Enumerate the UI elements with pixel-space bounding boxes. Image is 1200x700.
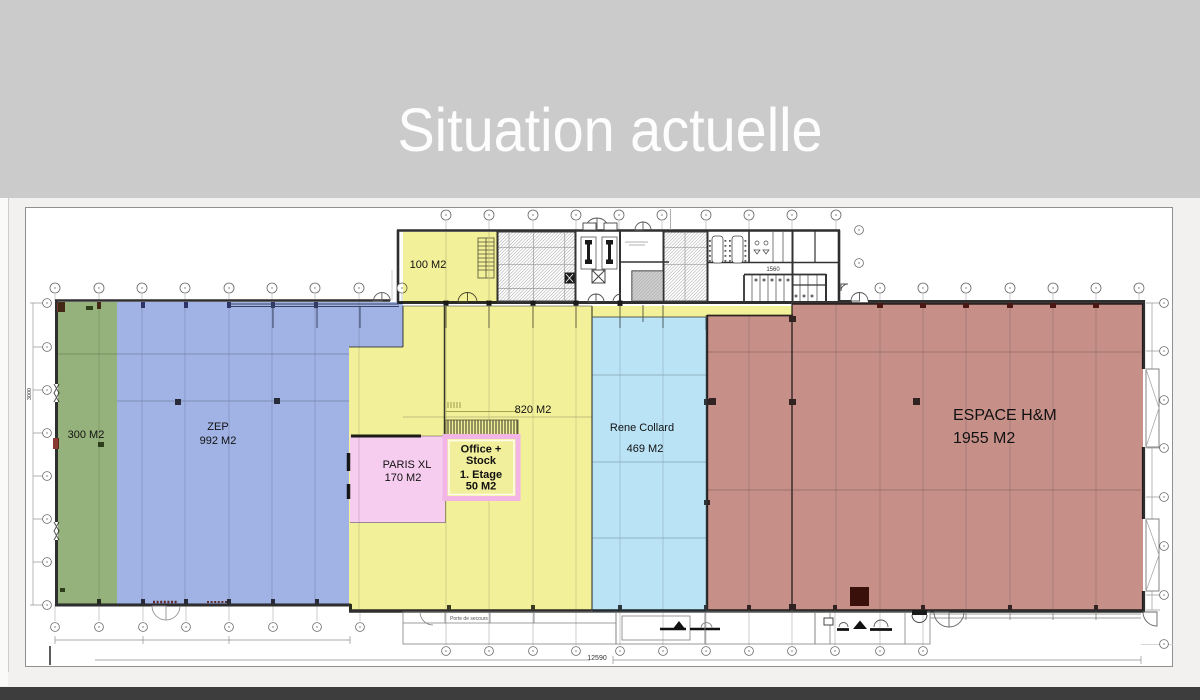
svg-text:12590: 12590 [587, 655, 607, 662]
svg-text:992 M2: 992 M2 [200, 435, 237, 447]
svg-text:1560: 1560 [766, 267, 780, 273]
svg-text:1955 M2: 1955 M2 [953, 430, 1015, 447]
svg-text:Office +: Office + [461, 444, 502, 456]
svg-text:300 M2: 300 M2 [68, 429, 105, 441]
svg-text:PARIS XL: PARIS XL [383, 459, 432, 471]
svg-text:ZEP: ZEP [207, 421, 228, 433]
svg-text:ESPACE H&M: ESPACE H&M [953, 407, 1057, 424]
svg-text:469 M2: 469 M2 [627, 443, 664, 455]
svg-text:Rene Collard: Rene Collard [610, 422, 674, 434]
svg-text:50 M2: 50 M2 [466, 481, 497, 493]
svg-text:820 M2: 820 M2 [515, 404, 552, 416]
svg-text:1. Etage: 1. Etage [460, 469, 502, 481]
svg-text:Porte de secours: Porte de secours [450, 616, 488, 622]
svg-text:100 M2: 100 M2 [410, 259, 447, 271]
svg-text:Stock: Stock [466, 455, 497, 467]
svg-text:170 M2: 170 M2 [385, 472, 422, 484]
svg-text:3000: 3000 [27, 388, 33, 400]
